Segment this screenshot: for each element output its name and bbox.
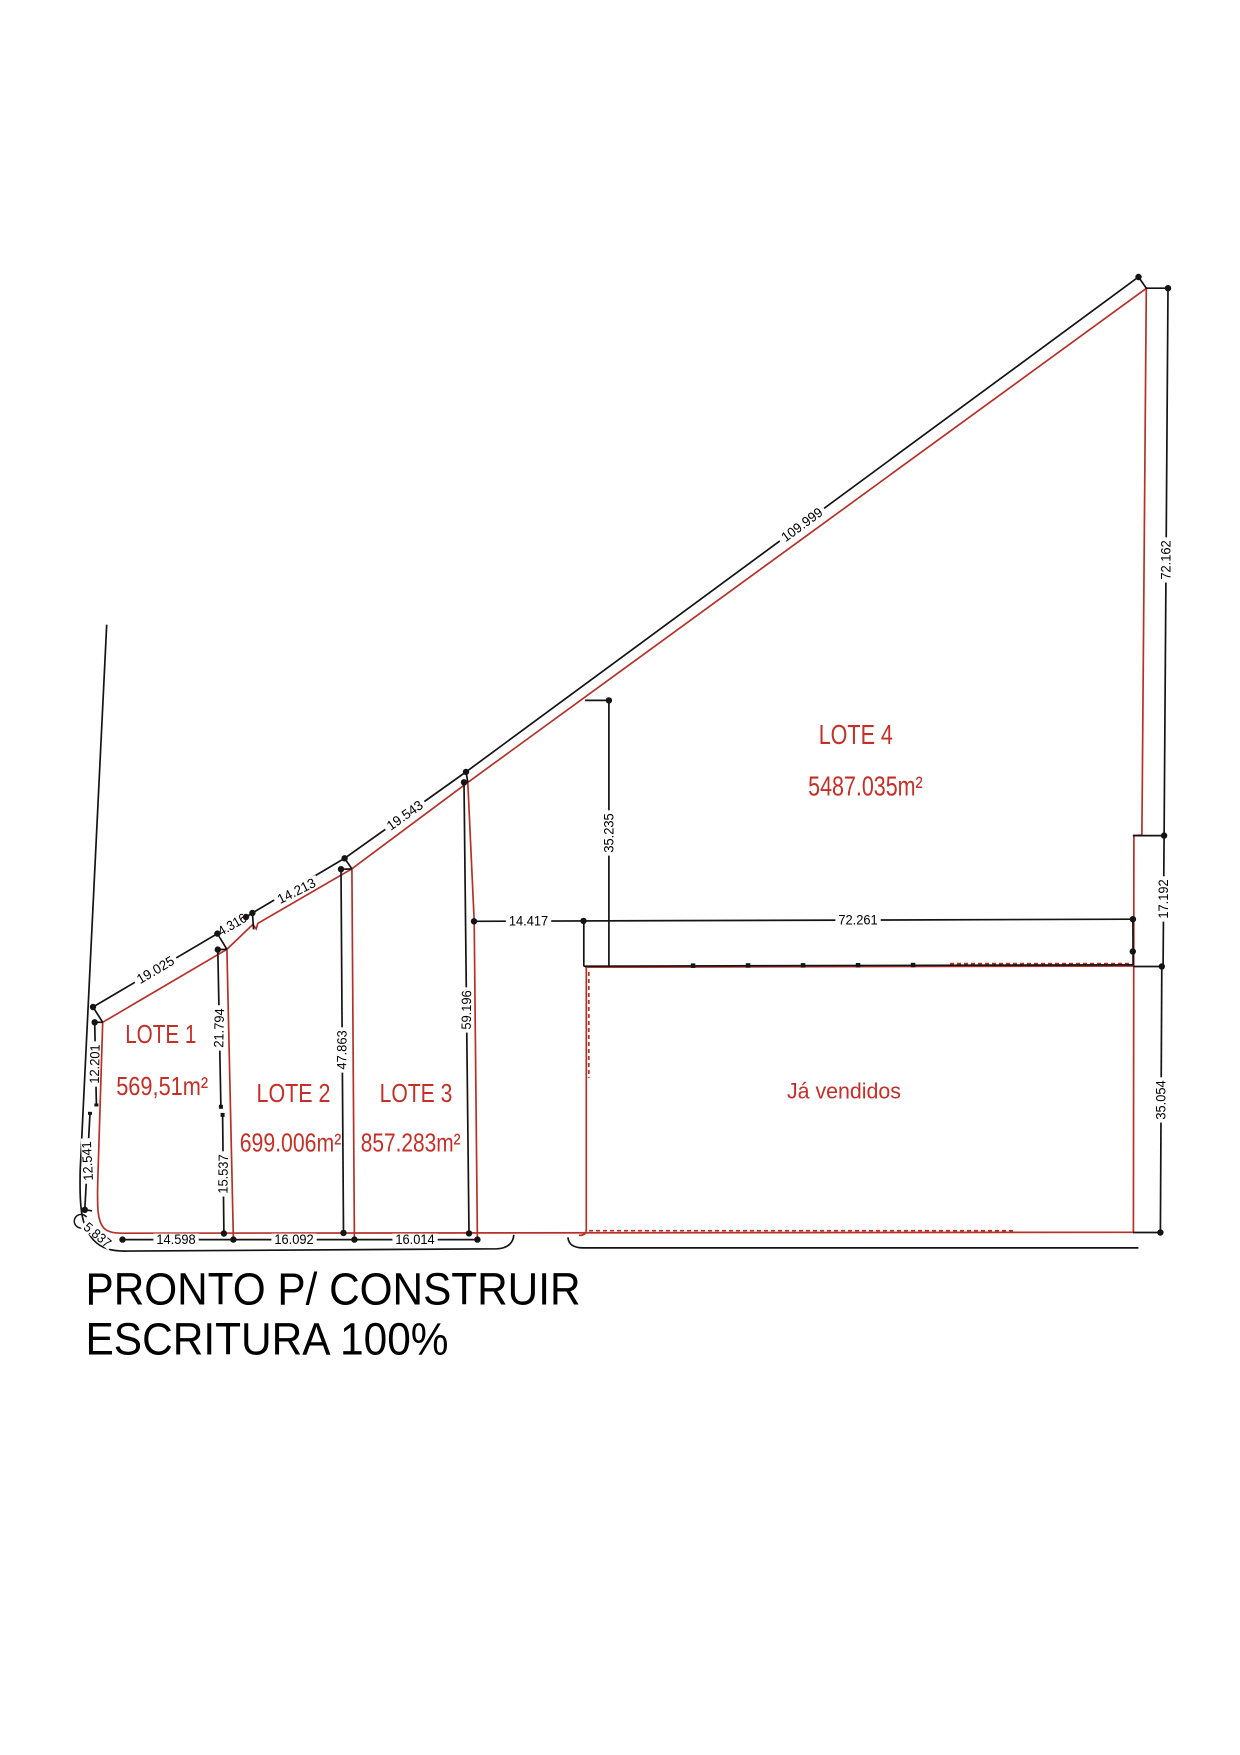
svg-text:ESCRITURA 100%: ESCRITURA 100%: [86, 1314, 449, 1365]
svg-text:47.863: 47.863: [334, 1030, 349, 1069]
svg-text:14.417: 14.417: [509, 914, 548, 929]
svg-text:59.196: 59.196: [459, 990, 474, 1029]
svg-text:699.006m²: 699.006m²: [240, 1128, 342, 1158]
svg-text:LOTE 1: LOTE 1: [125, 1019, 196, 1049]
svg-text:LOTE 3: LOTE 3: [380, 1078, 453, 1108]
svg-text:12.541: 12.541: [79, 1141, 96, 1181]
svg-text:PRONTO P/ CONSTRUIR: PRONTO P/ CONSTRUIR: [86, 1264, 581, 1315]
svg-text:16.092: 16.092: [274, 1232, 313, 1247]
svg-text:72.261: 72.261: [838, 913, 877, 928]
svg-text:15.537: 15.537: [215, 1154, 230, 1193]
svg-text:14.598: 14.598: [156, 1232, 195, 1247]
svg-text:857.283m²: 857.283m²: [361, 1128, 461, 1158]
svg-text:21.794: 21.794: [211, 1008, 227, 1048]
svg-text:5487.035m²: 5487.035m²: [808, 771, 923, 802]
svg-text:16.014: 16.014: [395, 1232, 435, 1247]
svg-text:72.162: 72.162: [1159, 540, 1174, 579]
svg-text:LOTE 2: LOTE 2: [257, 1078, 331, 1108]
svg-text:LOTE 4: LOTE 4: [819, 719, 893, 750]
svg-text:12.201: 12.201: [87, 1044, 103, 1084]
svg-text:17.192: 17.192: [1156, 879, 1171, 918]
svg-text:Já vendidos: Já vendidos: [787, 1079, 901, 1104]
svg-text:569,51m²: 569,51m²: [116, 1071, 208, 1101]
svg-text:35.054: 35.054: [1154, 1080, 1169, 1120]
svg-text:35.235: 35.235: [601, 813, 616, 852]
